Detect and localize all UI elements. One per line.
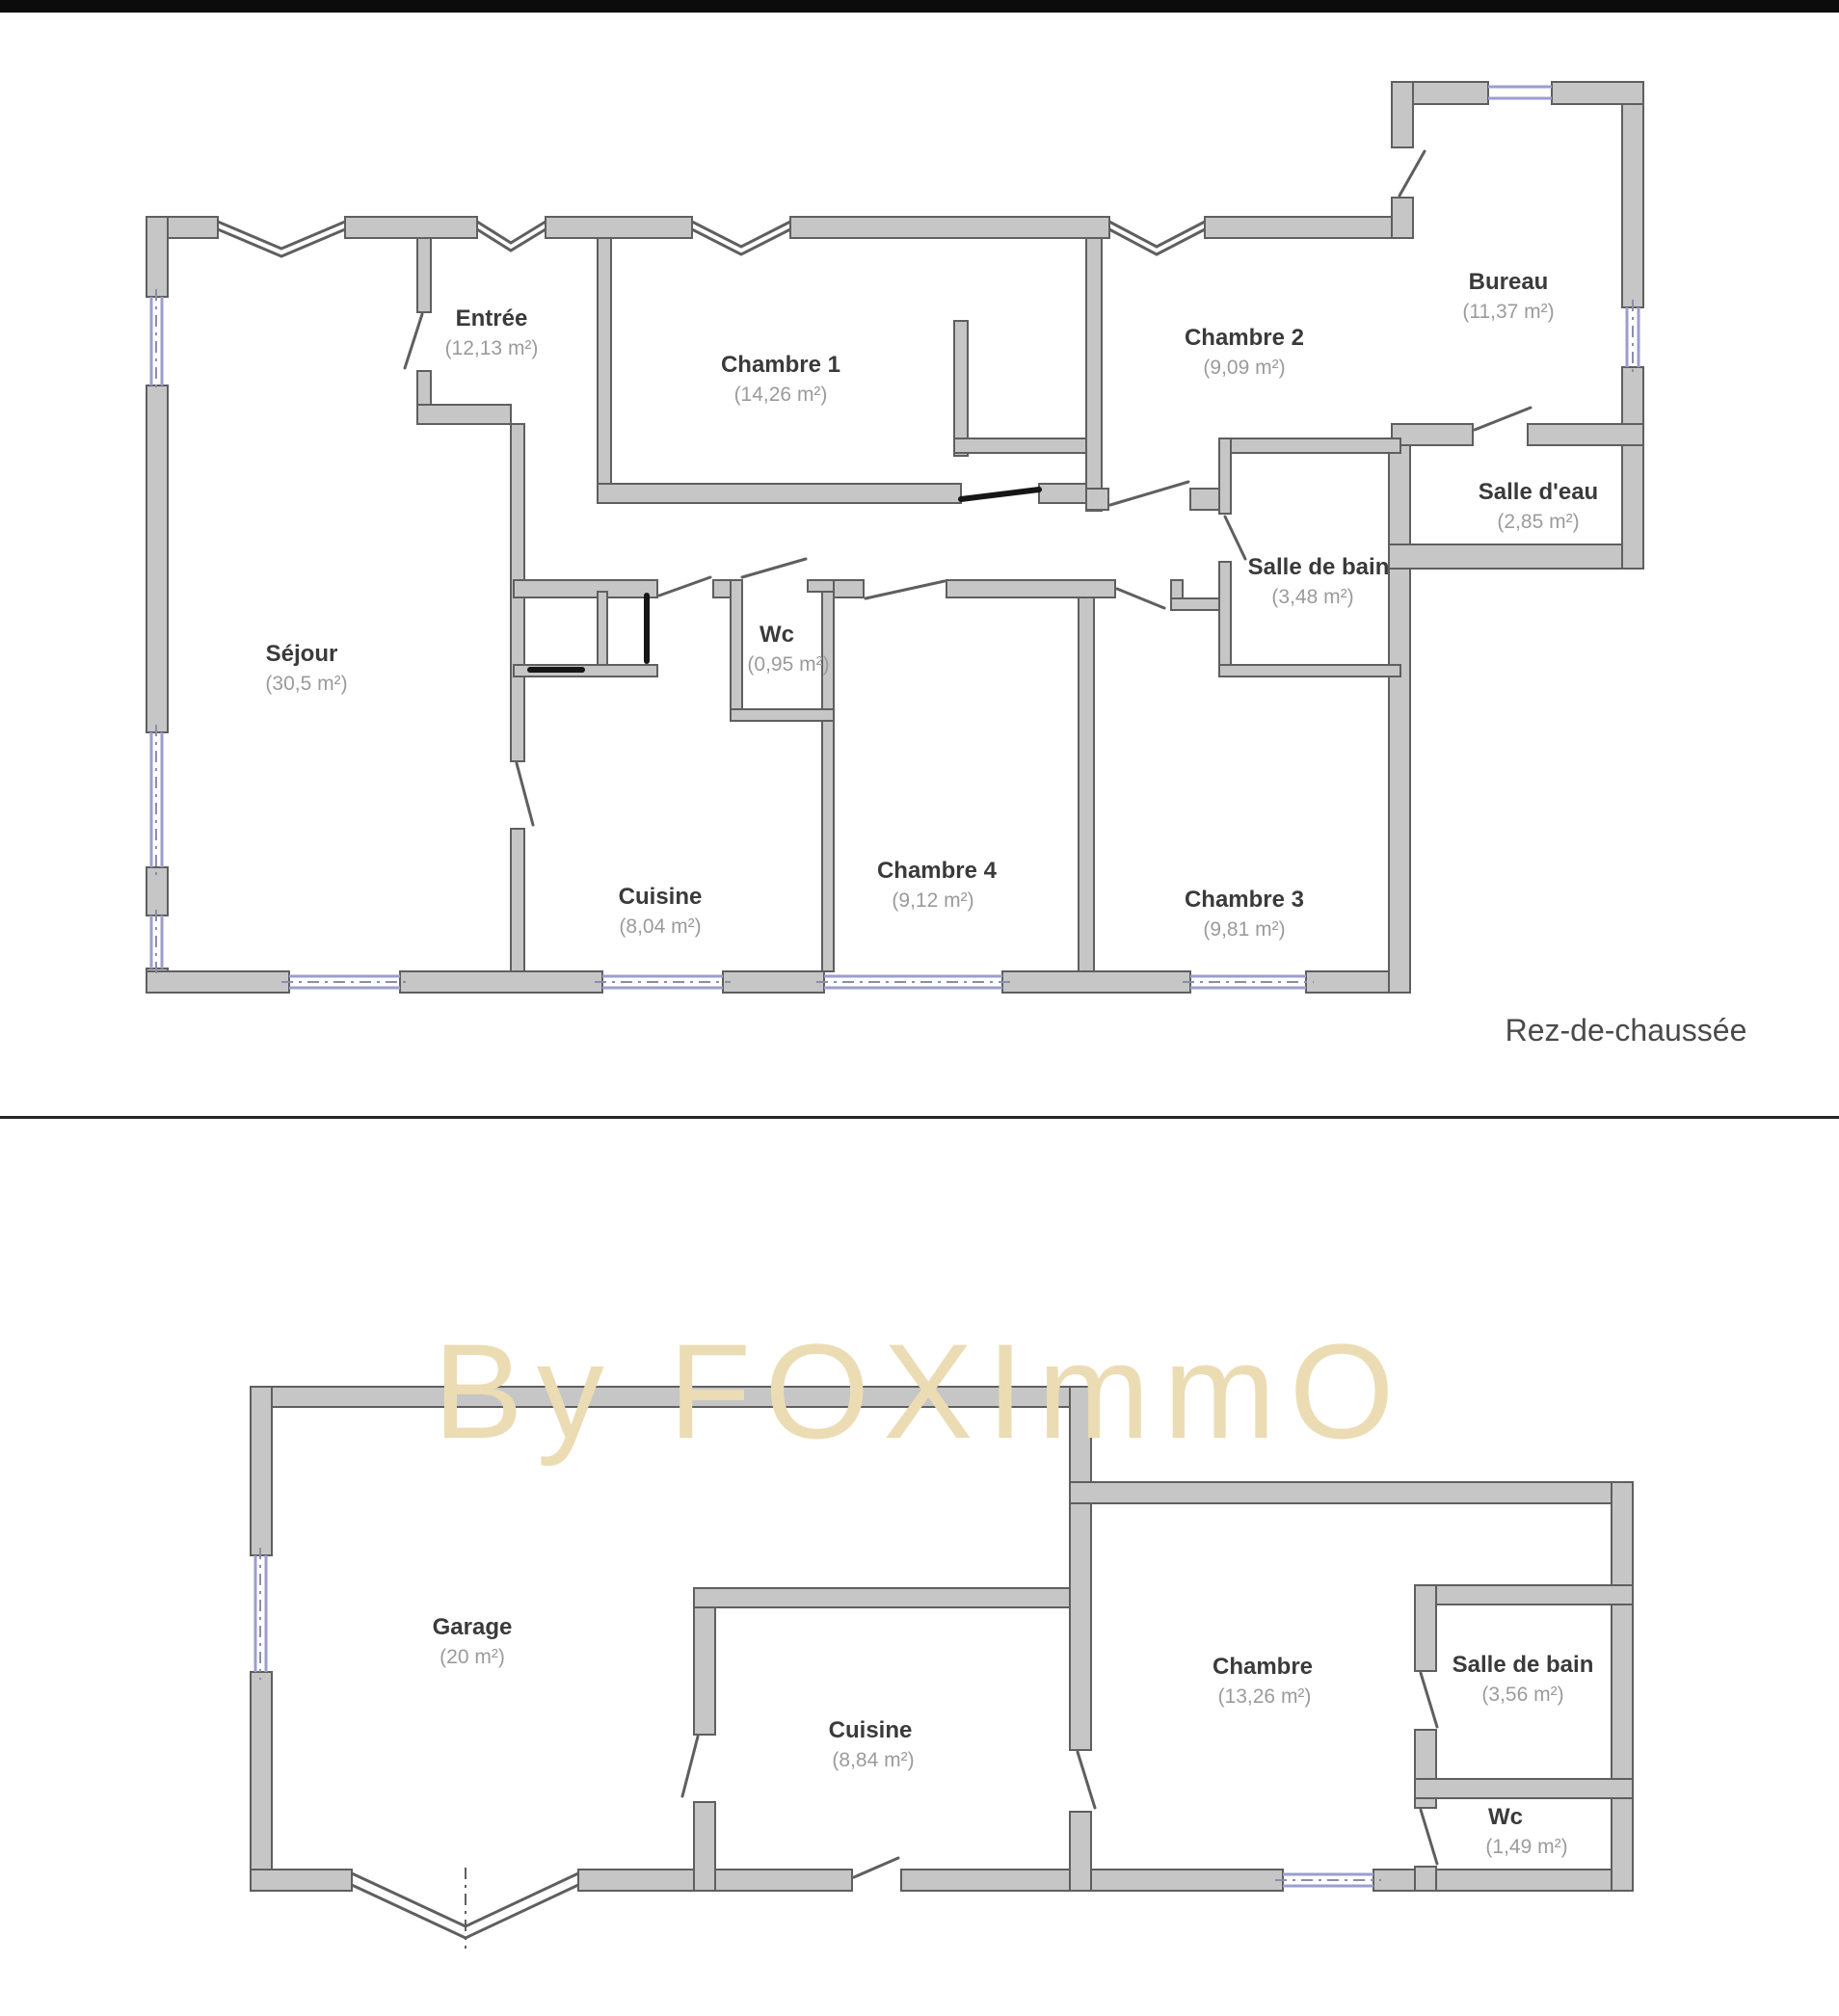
floor1-caption: Rez-de-chaussée [1506,1013,1747,1048]
room-label-wc: Wc [760,622,794,648]
room-area-bureau: (11,37 m²) [1462,301,1554,323]
room-area-chambre-4: (9,12 m²) [892,889,973,912]
room-area-chambre: (13,26 m²) [1218,1685,1312,1708]
floor1-doors [405,151,1531,825]
room-label-chambre: Chambre [1213,1654,1313,1680]
room-area-chambre-2: (9,09 m²) [1203,357,1285,379]
room-label-salle-d-eau: Salle d'eau [1479,479,1598,505]
room-label-sejour: Séjour [266,641,338,667]
watermark-text: By FOXImmO [433,1315,1407,1467]
floors-divider-line [0,1116,1839,1119]
room-area-sejour: (30,5 m²) [265,673,347,695]
room-label-cuisine-2: Cuisine [829,1717,913,1743]
floorplan-page: Séjour Entrée Chambre 1 Chambre 2 Bureau… [0,0,1839,2016]
room-label-bureau: Bureau [1469,269,1549,295]
room-label-wc-2: Wc [1488,1804,1523,1830]
room-area-entree: (12,13 m²) [445,337,539,359]
room-area-chambre-3: (9,81 m²) [1203,918,1285,941]
room-label-chambre-4: Chambre 4 [877,858,998,884]
room-area-cuisine: (8,04 m²) [619,915,701,938]
room-area-wc: (0,95 m²) [747,653,829,676]
room-area-salle-de-bain-2: (3,56 m²) [1481,1684,1563,1706]
top-black-bar [0,0,1839,13]
room-area-garage: (20 m²) [440,1646,505,1668]
room-label-entree: Entrée [456,305,528,332]
room-label-salle-de-bain: Salle de bain [1248,554,1390,580]
room-area-salle-d-eau: (2,85 m²) [1497,511,1579,533]
room-label-chambre-2: Chambre 2 [1185,325,1304,351]
room-area-cuisine-2: (8,84 m²) [832,1749,914,1771]
room-area-salle-de-bain: (3,48 m²) [1271,586,1353,608]
room-area-wc-2: (1,49 m²) [1485,1836,1567,1858]
floorplan-image: Séjour Entrée Chambre 1 Chambre 2 Bureau… [0,0,1839,2016]
room-label-chambre-1: Chambre 1 [721,352,840,378]
room-label-garage: Garage [433,1614,513,1640]
room-label-cuisine: Cuisine [619,884,703,910]
room-label-chambre-3: Chambre 3 [1185,887,1304,913]
room-label-salle-de-bain-2: Salle de bain [1453,1652,1594,1678]
floor2-garage-door-bay [352,1868,578,1949]
room-area-chambre-1: (14,26 m²) [734,384,828,406]
floor1-walls [147,82,1643,993]
floor2-doors [682,1673,1437,1877]
